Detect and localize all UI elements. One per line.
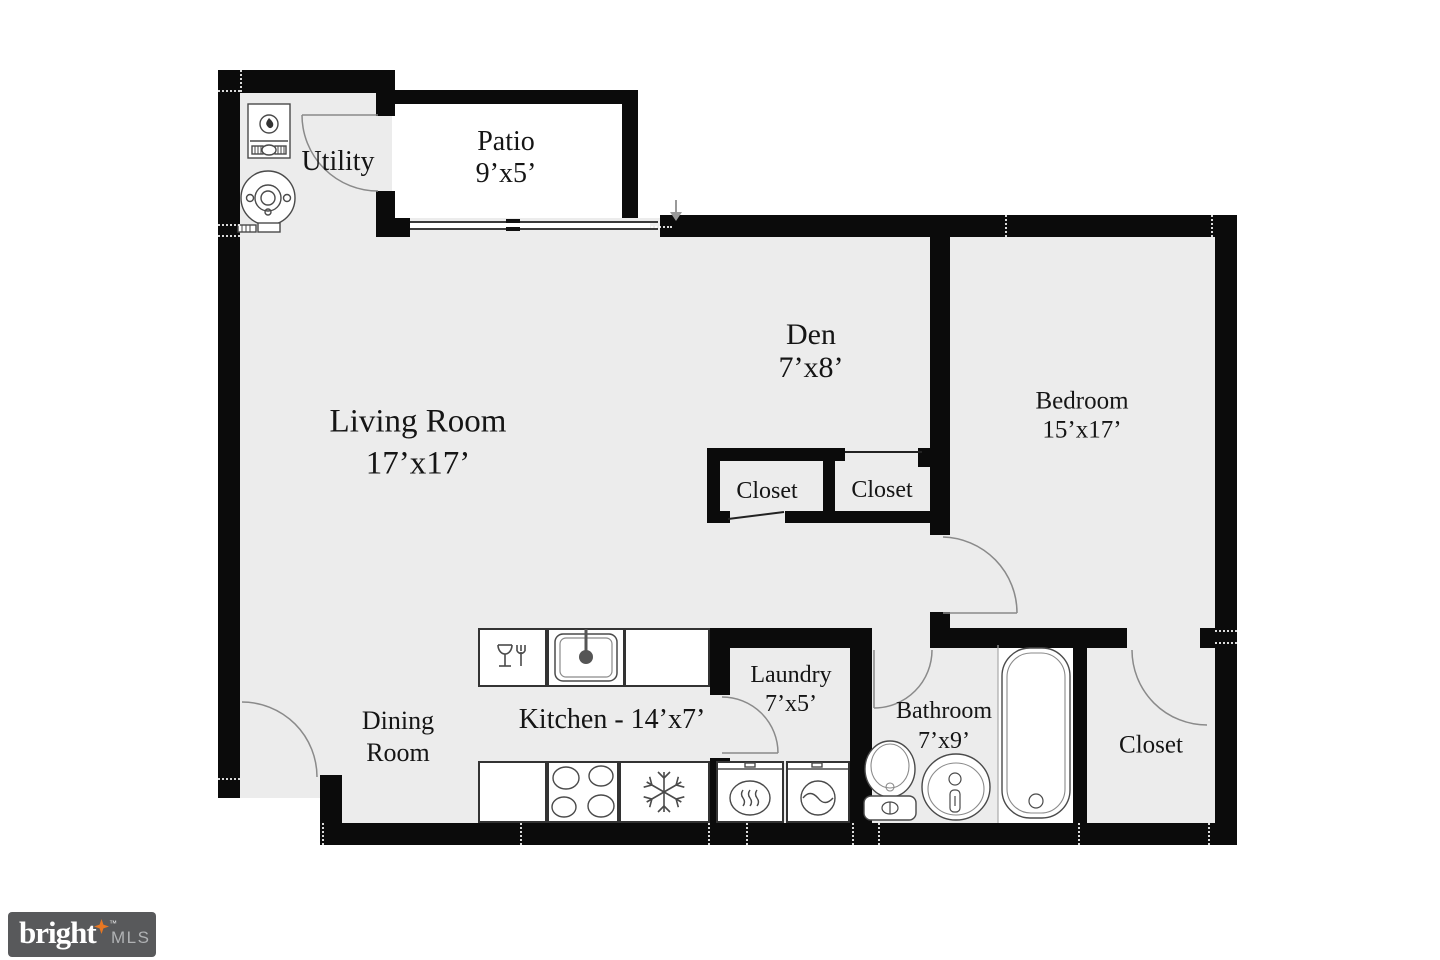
kitchen-sink-counter (547, 628, 625, 687)
dryer (716, 761, 784, 823)
floor-plan: Utility Patio 9’x5’ Living Room 17’x17’ … (0, 0, 1440, 960)
bathroom-closet-wall (1073, 628, 1087, 823)
laundry-left-wall-upper (710, 628, 730, 695)
logo-trademark: ™ (109, 919, 117, 928)
hall-closet-label: Closet (736, 479, 797, 503)
patio-dims: 9’x5’ (476, 160, 537, 188)
hall-closet2-label: Closet (851, 478, 912, 502)
joint-mark (1211, 215, 1213, 237)
closet-door-gap (1125, 626, 1207, 650)
kitchen-counter-left (478, 761, 547, 823)
refrigerator (619, 761, 710, 823)
joint-mark (1005, 215, 1007, 237)
logo-mls-text: MLS (111, 928, 150, 948)
utility-top-wall (218, 70, 395, 93)
joint-mark (218, 778, 240, 780)
joint-mark (1215, 642, 1237, 644)
hall-closet2-bottom-wall (823, 511, 935, 523)
tub-alcove (998, 645, 1078, 823)
logo-star-icon (94, 919, 109, 934)
brightmls-logo: bright ™ MLS (8, 912, 156, 957)
joint-mark (878, 823, 880, 845)
utility-label: Utility (301, 148, 374, 176)
joint-mark (322, 823, 324, 845)
joint-mark (852, 823, 854, 845)
dining-room-label-line1: Dining (362, 708, 434, 734)
den-label: Den (786, 320, 836, 350)
bedroom-left-wall (930, 237, 950, 535)
laundry-bathroom-wall (850, 628, 872, 823)
hall-closet2-top-end (918, 448, 934, 467)
dishwasher (478, 628, 547, 687)
sliding-door-strip (410, 223, 650, 228)
joint-mark (1208, 823, 1210, 845)
bottom-wall (320, 823, 1237, 845)
joint-mark (648, 226, 672, 228)
joint-mark (218, 235, 240, 237)
bedroom-dims: 15’x17’ (1042, 418, 1121, 443)
hall-closet-bottom-wall-l (707, 511, 730, 523)
logo-brand-text: bright (19, 915, 96, 951)
kitchen-label: Kitchen - 14’x7’ (519, 706, 706, 734)
joint-mark (520, 823, 522, 845)
patio-top-wall (376, 90, 637, 104)
joint-mark (1078, 823, 1080, 845)
bedroom-door-gap (928, 535, 952, 615)
stove (547, 761, 619, 823)
joint-mark (746, 823, 748, 845)
den-dims: 7’x8’ (779, 353, 844, 383)
bedroom-closet-label: Closet (1119, 733, 1183, 758)
livingroom-top-wall-stub (376, 218, 410, 237)
joint-mark (708, 823, 710, 845)
hall-closet2-top-stub (835, 448, 845, 461)
bathroom-label: Bathroom (896, 699, 992, 723)
joint-mark (1215, 630, 1237, 632)
living-room-label: Living Room (330, 406, 507, 439)
laundry-door-gap (708, 693, 732, 760)
bathroom-dims: 7’x9’ (918, 729, 970, 753)
left-wall (218, 70, 240, 798)
dining-room-label-line2: Room (366, 740, 430, 766)
bedroom-bottom-wall-a (930, 628, 1127, 648)
living-room-dims: 17’x17’ (366, 448, 470, 481)
laundry-top-wall (710, 628, 855, 648)
joint-mark (240, 70, 242, 92)
entry-notch (238, 798, 320, 845)
washer (786, 761, 850, 823)
laundry-dims: 7’x5’ (765, 692, 817, 716)
joint-mark (218, 224, 240, 226)
right-wall (1215, 215, 1237, 845)
patio-label: Patio (477, 128, 535, 156)
top-main-wall (660, 215, 1237, 237)
bedroom-label: Bedroom (1035, 389, 1128, 414)
patio-right-wall (622, 90, 638, 218)
hall-closet-top-wall (707, 448, 835, 461)
joint-mark (218, 90, 240, 92)
kitchen-counter-right (624, 628, 710, 687)
bathroom-door-gap (870, 626, 932, 650)
laundry-label: Laundry (750, 663, 831, 687)
